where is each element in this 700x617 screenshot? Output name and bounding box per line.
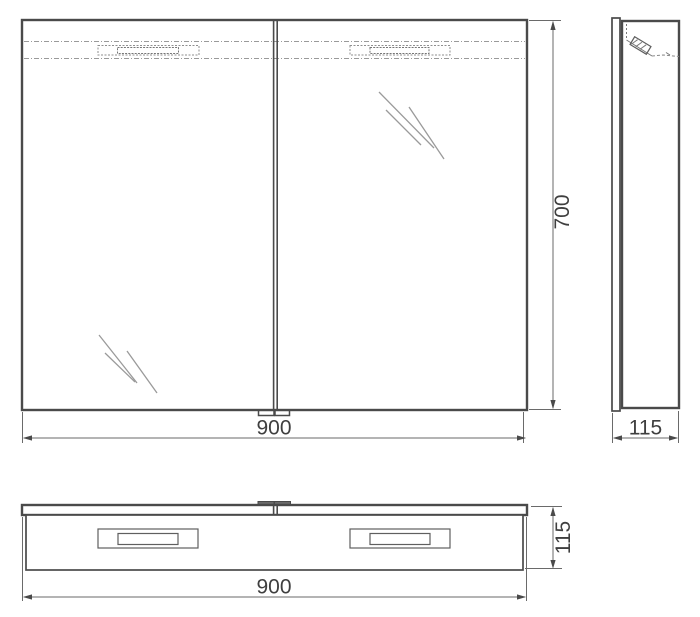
arrow-up-icon [550, 507, 555, 516]
dimension-height-front: 700 [529, 21, 574, 410]
arrow-down-icon [550, 400, 555, 409]
handle-left [259, 411, 275, 416]
cabinet-outline [22, 20, 527, 410]
side-view [612, 18, 679, 411]
top-door-strip [22, 505, 527, 515]
height-dimension-label: 700 [551, 194, 574, 229]
dimension-depth-top: 115 [525, 507, 575, 569]
arrow-left-icon [613, 435, 622, 440]
technical-drawing-canvas: 700 900 1 [0, 0, 700, 617]
handle-right [275, 411, 290, 416]
top-cabinet-body [26, 515, 523, 570]
arrow-up-icon [550, 21, 555, 30]
arrow-right-icon [669, 435, 678, 440]
front-view [22, 20, 527, 416]
width-dimension-label: 900 [256, 417, 291, 440]
dimension-depth-side: 115 [613, 411, 679, 443]
dimension-width-front: 900 [23, 412, 527, 443]
depth-dimension-label: 115 [552, 521, 575, 554]
arrow-left-icon [23, 435, 32, 440]
depth-dimension-label: 115 [629, 417, 662, 440]
door-handle [259, 411, 290, 416]
width-dimension-label: 900 [256, 576, 291, 599]
arrow-right-icon [517, 594, 526, 599]
side-door-panel [612, 18, 620, 411]
top-view [22, 502, 527, 571]
arrow-down-icon [550, 560, 555, 569]
side-cabinet-body [622, 21, 679, 408]
arrow-left-icon [23, 594, 32, 599]
arrow-right-icon [517, 435, 526, 440]
